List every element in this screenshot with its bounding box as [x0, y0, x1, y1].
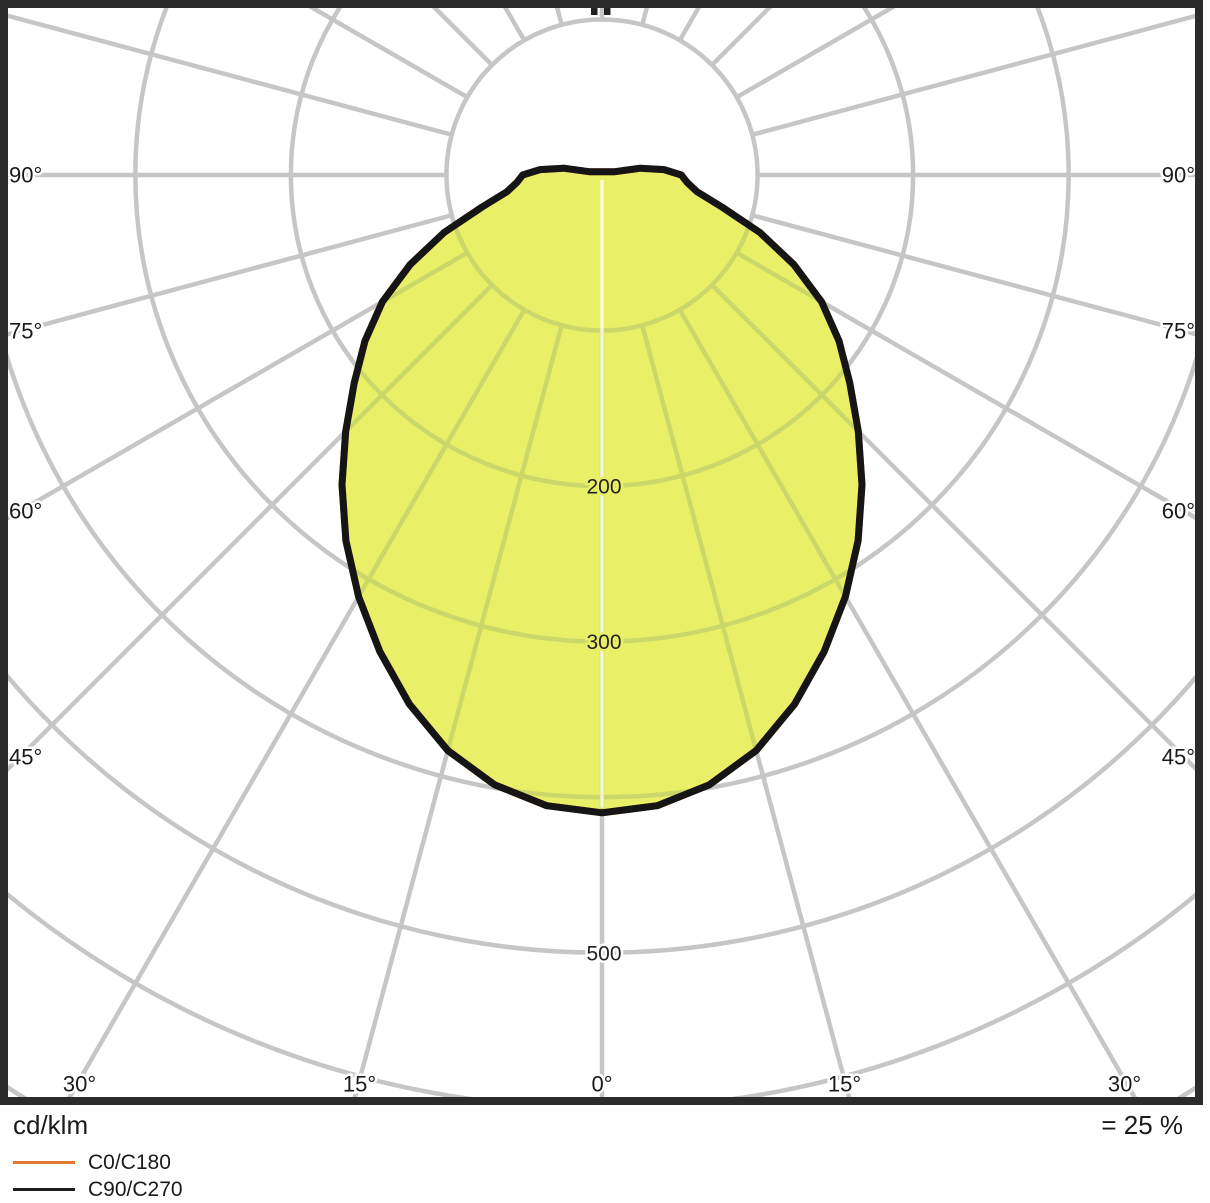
angle-label: 75° [9, 318, 42, 343]
grid-spoke [0, 0, 452, 135]
angle-label: 60° [9, 499, 42, 524]
grid-spoke [737, 0, 1210, 97]
ring-label: 200 [586, 476, 621, 499]
luminaire-marker [591, 7, 598, 15]
grid-spoke [737, 0, 1210, 97]
legend-line-c0-c180-icon [13, 1161, 75, 1164]
legend-line-c90-c270-icon [13, 1188, 75, 1191]
angle-label: 15° [828, 1072, 861, 1097]
radial-unit-label: cd/klm [13, 1110, 88, 1141]
plot-area [0, 0, 1210, 1200]
angle-label: 90° [9, 163, 42, 188]
angle-label: 30° [63, 1072, 96, 1097]
legend-label-c90-c270: C90/C270 [88, 1178, 183, 1202]
ring-label: 300 [586, 631, 621, 654]
angle-label: 30° [1108, 1072, 1141, 1097]
polar-diagram: 20030050090°75°60°45°90°75°60°45°30°15°0… [0, 0, 1210, 1200]
angle-label: 15° [343, 1072, 376, 1097]
legend-label-c0-c180: C0/C180 [88, 1151, 171, 1175]
grid-spoke [0, 0, 467, 97]
legend-item-c90-c270: C90/C270 [13, 1176, 183, 1203]
angle-label: 75° [1162, 318, 1195, 343]
angle-label: 45° [1162, 745, 1195, 770]
angle-label: 45° [9, 745, 42, 770]
grid-spoke [0, 0, 467, 97]
angle-label: 60° [1162, 499, 1195, 524]
luminaire-marker [604, 7, 611, 15]
legend: C0/C180 C90/C270 [13, 1149, 183, 1203]
angle-label: 90° [1162, 163, 1195, 188]
angle-label: 0° [591, 1072, 612, 1097]
legend-item-c0-c180: C0/C180 [13, 1149, 183, 1176]
grid-spoke [752, 0, 1210, 135]
ring-label: 500 [586, 942, 621, 965]
scale-note: = 25 % [1101, 1110, 1183, 1141]
